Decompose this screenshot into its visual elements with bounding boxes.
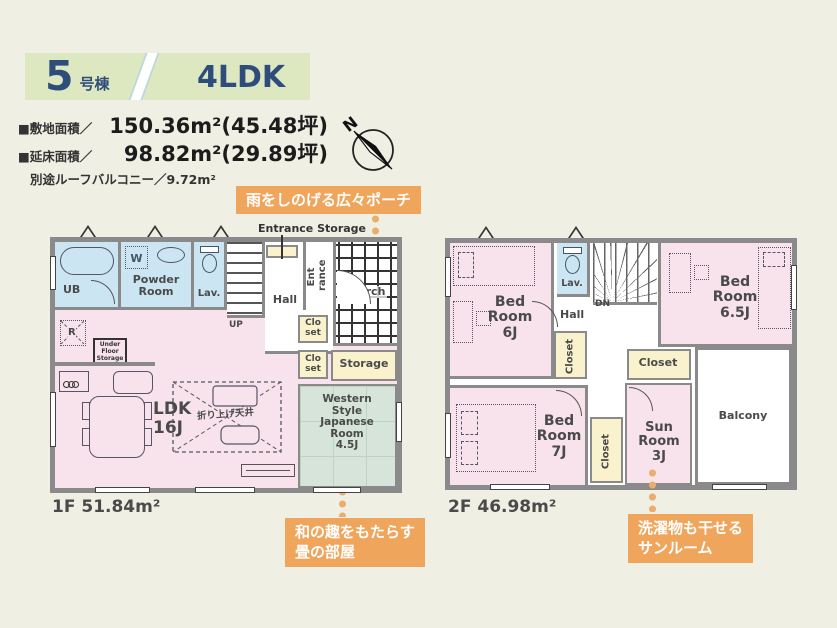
washer-icon: W bbox=[125, 246, 148, 269]
japanese-room: Western Style Japanese Room 4.5J bbox=[298, 384, 397, 488]
sofa-icon bbox=[213, 386, 257, 406]
slash-divider bbox=[128, 53, 159, 100]
door-arc bbox=[532, 301, 558, 327]
chair-icon bbox=[144, 428, 152, 446]
door-arc bbox=[91, 280, 115, 304]
toilet-bowl-icon bbox=[202, 254, 217, 273]
land-area-row: ■敷地面積／ 150.36m²(45.48坪) bbox=[18, 110, 328, 138]
stairs-1f bbox=[227, 242, 265, 318]
window-marker bbox=[95, 487, 150, 493]
bed-icon bbox=[453, 246, 535, 286]
pillow-icon bbox=[763, 252, 785, 267]
vent-triangle bbox=[147, 225, 163, 237]
closet-2f-b: Closet bbox=[627, 349, 691, 380]
vent-triangle bbox=[213, 225, 229, 237]
unit-suffix: 号棟 bbox=[80, 73, 110, 94]
stove-icon bbox=[59, 371, 89, 392]
kitchen-counter-wall bbox=[55, 362, 155, 366]
callout-tatami: 和の趣をもたらす 畳の部屋 bbox=[285, 518, 425, 567]
toilet-icon bbox=[200, 246, 219, 253]
window-marker bbox=[712, 484, 767, 490]
lav-label: Lav. bbox=[196, 288, 222, 299]
vent-triangle bbox=[80, 225, 96, 237]
floor2-area-label: 2F 46.98m² bbox=[448, 497, 556, 517]
fridge-label: R bbox=[68, 327, 76, 338]
floorplan-sheet: 5 号棟 4LDK ■敷地面積／ 150.36m²(45.48坪) ■延床面積／… bbox=[0, 0, 837, 628]
window-marker bbox=[396, 402, 402, 442]
desk-icon bbox=[669, 253, 691, 293]
storage-1f: Storage bbox=[331, 350, 397, 381]
powder-room-label: Powder Room bbox=[125, 274, 187, 298]
floorplan-2f: Bed Room 6J Lav. DN Hall Bed Room 6.5J C… bbox=[445, 238, 797, 490]
entrance-storage-leader bbox=[281, 235, 283, 259]
pillow-icon bbox=[461, 411, 478, 435]
sunroom-label: Sun Room 3J bbox=[631, 421, 687, 464]
closet-label: Closet bbox=[629, 357, 687, 369]
sofa-icon bbox=[221, 426, 259, 444]
toilet-icon bbox=[563, 247, 582, 254]
door-arc bbox=[556, 390, 582, 416]
floor-area-label: ■延床面積／ bbox=[18, 146, 106, 165]
room-ub: UB bbox=[55, 242, 121, 310]
dn-label: DN bbox=[595, 300, 610, 310]
window-marker bbox=[313, 487, 361, 493]
window-marker bbox=[50, 256, 56, 290]
chair-icon bbox=[82, 428, 90, 446]
window-marker bbox=[445, 413, 451, 458]
ub-label: UB bbox=[63, 284, 80, 296]
hall-label-1f: Hall bbox=[267, 294, 303, 306]
lav-2f-label: Lav. bbox=[559, 279, 585, 289]
land-area-value: 150.36m²(45.48坪) bbox=[106, 110, 328, 140]
bedroom-6j-label: Bed Room 6J bbox=[480, 295, 540, 341]
double-bed-icon bbox=[456, 404, 536, 472]
closet-2f-a: Closet bbox=[554, 331, 587, 379]
room-sunroom: Sun Room 3J bbox=[625, 383, 692, 485]
room-powder: W Powder Room bbox=[121, 242, 194, 310]
compass-icon: N bbox=[336, 112, 402, 178]
entrance-storage-note: Entrance Storage bbox=[258, 222, 366, 235]
fridge-icon: R bbox=[60, 320, 86, 346]
floor-area-value: 98.82m²(29.89坪) bbox=[106, 138, 328, 168]
room-bedroom-6j: Bed Room 6J bbox=[450, 243, 554, 379]
floor1-area-label: 1F 51.84m² bbox=[52, 497, 160, 517]
callout-dotted-trail bbox=[648, 468, 657, 512]
room-bedroom-7j: Bed Room 7J bbox=[450, 385, 588, 485]
closet-label: Closet bbox=[601, 430, 612, 474]
unit-badge: 5 号棟 4LDK bbox=[25, 53, 310, 100]
vent-triangle bbox=[568, 226, 584, 238]
closet-label: Clo set bbox=[303, 319, 323, 339]
bathtub-icon bbox=[60, 247, 114, 275]
kitchen-sink-icon bbox=[113, 371, 153, 394]
japanese-room-label: Western Style Japanese Room 4.5J bbox=[300, 394, 394, 452]
washer-label: W bbox=[130, 252, 142, 265]
floor-area-row: ■延床面積／ 98.82m²(29.89坪) bbox=[18, 138, 328, 166]
pillow-icon bbox=[458, 252, 474, 278]
toilet-bowl-icon bbox=[565, 255, 580, 274]
closet-1f-b: Clo set bbox=[298, 350, 328, 379]
hall-label-2f: Hall bbox=[560, 309, 584, 321]
land-area-label: ■敷地面積／ bbox=[18, 118, 106, 137]
room-lav-2f: Lav. bbox=[557, 243, 590, 297]
door-arc bbox=[629, 387, 653, 411]
layout-type: 4LDK bbox=[197, 60, 285, 95]
window-marker bbox=[791, 265, 797, 310]
closet-label: Closet bbox=[565, 335, 576, 379]
unit-number: 5 bbox=[45, 56, 74, 97]
vent-triangle bbox=[478, 226, 494, 238]
chair-icon bbox=[144, 402, 152, 420]
window-marker bbox=[50, 392, 56, 447]
closet-2f-c: Closet bbox=[590, 417, 623, 483]
bedroom-7j-label: Bed Room 7J bbox=[534, 414, 584, 460]
room-bedroom-65j: Bed Room 6.5J bbox=[658, 243, 792, 347]
storage-label: Storage bbox=[333, 358, 395, 370]
room-lav-1f: Lav. bbox=[194, 242, 227, 310]
ldk-label: LDK 16J bbox=[153, 400, 191, 437]
callout-porch: 雨をしのげる広々ポーチ bbox=[236, 186, 421, 214]
tv-board-icon bbox=[241, 464, 295, 477]
dining-table-icon bbox=[89, 396, 145, 458]
pillow-icon bbox=[461, 441, 478, 465]
sink-icon bbox=[157, 247, 185, 263]
balcony: Balcony bbox=[695, 347, 792, 485]
chair-icon bbox=[82, 402, 90, 420]
bedroom-65j-label: Bed Room 6.5J bbox=[705, 275, 765, 321]
closet-1f-a: Clo set bbox=[298, 315, 328, 343]
callout-sunroom: 洗濯物も干せる サンルーム bbox=[628, 514, 753, 563]
window-marker bbox=[490, 484, 550, 490]
window-marker bbox=[445, 257, 451, 297]
site-info: ■敷地面積／ 150.36m²(45.48坪) ■延床面積／ 98.82m²(2… bbox=[18, 110, 328, 188]
compass-north-label: N bbox=[339, 113, 361, 136]
desk-icon bbox=[453, 301, 473, 343]
window-marker bbox=[195, 487, 255, 493]
balcony-label: Balcony bbox=[712, 410, 774, 422]
up-label: UP bbox=[229, 321, 243, 331]
closet-label: Clo set bbox=[303, 355, 323, 375]
stairs-2f bbox=[593, 243, 657, 305]
entrance-label: Ent rance bbox=[306, 263, 328, 291]
floorplan-1f: UB W Powder Room Lav. UP Hall Ent rance … bbox=[50, 237, 402, 493]
